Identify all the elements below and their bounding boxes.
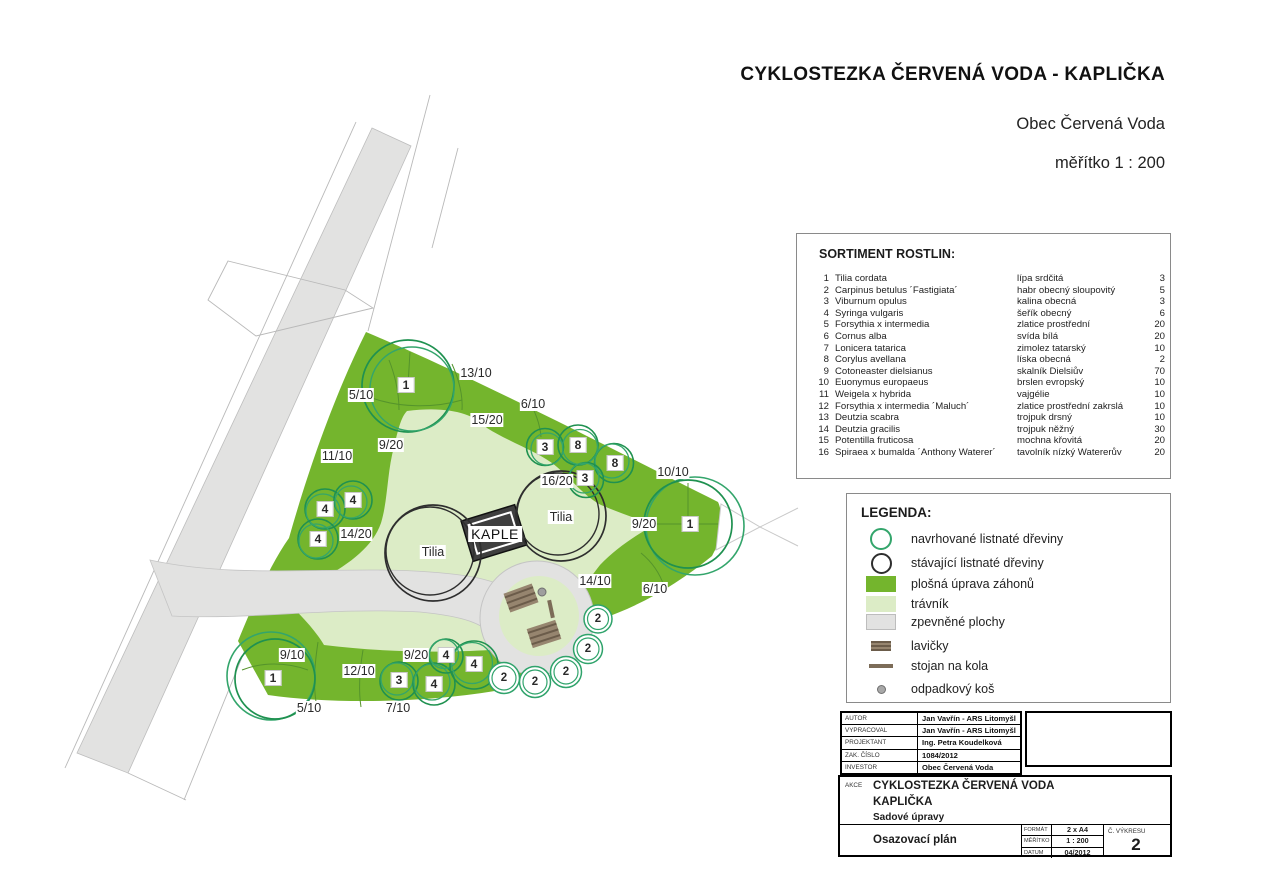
bed-quantity-label: 12/10	[342, 664, 375, 678]
plant-latin-name: Forsythia x intermedia	[835, 319, 1017, 331]
plant-ref-label: 4	[438, 647, 455, 663]
plant-count: 20	[1139, 447, 1165, 459]
legend-item-label: stávající listnaté dřeviny	[911, 556, 1044, 570]
authors-table-value: Jan Vavřín - ARS Litomyšl	[918, 713, 1020, 724]
bed-quantity-label: 16/20	[540, 474, 573, 488]
authors-table-value: Jan Vavřín - ARS Litomyšl	[918, 725, 1020, 736]
plant-number: 14	[807, 424, 835, 436]
plant-czech-name: skalník Dielsiův	[1017, 366, 1139, 378]
plant-latin-name: Potentilla fruticosa	[835, 435, 1017, 447]
paving-swatch-icon	[861, 611, 901, 633]
bed-quantity-label: 5/10	[296, 701, 322, 715]
plant-list-row: 10Euonymus europaeusbrslen evropský10	[797, 377, 1170, 389]
bed-quantity-label: 6/10	[642, 582, 668, 596]
akce-label: AKCE	[845, 782, 862, 789]
title-block-bottom: Osazovací plán FORMÁT2 x A4MĚŘÍTKO1 : 20…	[840, 824, 1170, 856]
bed-quantity-label: 11/10	[321, 449, 353, 463]
bed-swatch-icon	[861, 573, 901, 595]
plant-list-row: 8Corylus avellanalíska obecná2	[797, 354, 1170, 366]
authors-table-extension-box	[1025, 711, 1172, 767]
plant-latin-name: Deutzia gracilis	[835, 424, 1017, 436]
plant-czech-name: zimolez tatarský	[1017, 343, 1139, 355]
legend-item: navrhované listnaté dřeviny	[847, 528, 1170, 550]
bed-swatch-symbol	[866, 576, 896, 592]
authors-table-value: 1084/2012	[918, 750, 1020, 761]
drawing-name: Osazovací plán	[873, 834, 957, 846]
sheet-title: CYKLOSTEZKA ČERVENÁ VODA - KAPLIČKA	[740, 64, 1165, 86]
plant-count: 10	[1139, 343, 1165, 355]
plant-count: 6	[1139, 308, 1165, 320]
plant-latin-name: Lonicera tatarica	[835, 343, 1017, 355]
drawing-meta-label: FORMÁT	[1022, 825, 1052, 835]
plant-count: 3	[1139, 296, 1165, 308]
legend-item-label: trávník	[911, 597, 949, 611]
plant-count: 10	[1139, 401, 1165, 413]
plant-ref-label: 3	[577, 470, 594, 486]
plant-number: 3	[807, 296, 835, 308]
tree-ref-label: 2	[563, 666, 569, 678]
plant-ref-label: 3	[391, 672, 408, 688]
authors-table-row: VYPRACOVALJan Vavřín - ARS Litomyšl	[842, 725, 1020, 737]
drawing-meta-label: DATUM	[1022, 848, 1052, 858]
bed-quantity-label: 9/20	[403, 648, 429, 662]
plant-list-row: 3Viburnum opuluskalina obecná3	[797, 296, 1170, 308]
plant-czech-name: trojpuk drsný	[1017, 412, 1139, 424]
drawing-meta-value: 1 : 200	[1052, 836, 1103, 846]
bed-quantity-label: 9/20	[631, 517, 657, 531]
plant-ref-label: 4	[317, 501, 334, 517]
bed-quantity-label: 5/10	[348, 388, 374, 402]
bed-quantity-label: 14/10	[578, 574, 611, 588]
legend-item-label: lavičky	[911, 639, 949, 653]
plant-number: 2	[807, 285, 835, 297]
authors-table-row: AUTORJan Vavřín - ARS Litomyšl	[842, 713, 1020, 725]
drawing-meta-value: 2 x A4	[1052, 825, 1103, 835]
legend-item: stávající listnaté dřeviny	[847, 552, 1170, 574]
legend-title: LEGENDA:	[861, 505, 932, 520]
plant-number: 10	[807, 377, 835, 389]
plant-latin-name: Carpinus betulus ´Fastigiata´	[835, 285, 1017, 297]
sheet-scale-note: měřítko 1 : 200	[740, 154, 1165, 173]
authors-table-label: AUTOR	[842, 713, 918, 724]
existing-tree-name-label: Tilia	[420, 545, 446, 559]
plant-ref-label: 8	[570, 437, 587, 453]
legend-item-label: zpevněné plochy	[911, 615, 1005, 629]
plant-count: 10	[1139, 377, 1165, 389]
plant-latin-name: Corylus avellana	[835, 354, 1017, 366]
authors-table-label: ZAK. ČÍSLO	[842, 750, 918, 761]
plant-number: 5	[807, 319, 835, 331]
plant-number: 7	[807, 343, 835, 355]
plant-czech-name: brslen evropský	[1017, 377, 1139, 389]
plant-czech-name: kalina obecná	[1017, 296, 1139, 308]
plant-count: 3	[1139, 273, 1165, 285]
plant-czech-name: líska obecná	[1017, 354, 1139, 366]
proposed-tree-circle-symbol	[870, 528, 892, 550]
bike-stand-symbol	[869, 664, 893, 668]
plant-czech-name: lípa srdčitá	[1017, 273, 1139, 285]
plant-czech-name: šeřík obecný	[1017, 308, 1139, 320]
plant-list-row: 4Syringa vulgarisšeřík obecný6	[797, 308, 1170, 320]
plant-latin-name: Syringa vulgaris	[835, 308, 1017, 320]
plant-ref-label: 3	[537, 439, 554, 455]
plant-list-row: 15Potentilla fruticosamochna křovitá20	[797, 435, 1170, 447]
bed-quantity-label: 6/10	[520, 397, 546, 411]
legend-item-label: odpadkový koš	[911, 682, 994, 696]
drawing-meta-value: 04/2012	[1052, 848, 1103, 858]
plant-number: 12	[807, 401, 835, 413]
paving-swatch-symbol	[866, 614, 896, 630]
bed-quantity-label: 10/10	[656, 465, 689, 479]
plant-number: 1	[807, 273, 835, 285]
authors-table-row: ZAK. ČÍSLO1084/2012	[842, 750, 1020, 762]
plant-latin-name: Cotoneaster dielsianus	[835, 366, 1017, 378]
plant-latin-name: Cornus alba	[835, 331, 1017, 343]
bed-quantity-label: 13/10	[459, 366, 492, 380]
tree-ref-label: 2	[585, 643, 591, 655]
plant-list-row: 5Forsythia x intermediazlatice prostředn…	[797, 319, 1170, 331]
project-name-line1: CYKLOSTEZKA ČERVENÁ VODA	[873, 780, 1054, 792]
legend-item-label: plošná úprava záhonů	[911, 577, 1034, 591]
authors-table: AUTORJan Vavřín - ARS LitomyšlVYPRACOVAL…	[840, 711, 1022, 775]
lawn-swatch-symbol	[866, 596, 896, 612]
sheet-header: CYKLOSTEZKA ČERVENÁ VODA - KAPLIČKA Obec…	[740, 64, 1165, 173]
plant-number: 16	[807, 447, 835, 459]
bed-quantity-label: 9/20	[378, 438, 404, 452]
plant-count: 20	[1139, 435, 1165, 447]
plant-czech-name: zlatice prostřední	[1017, 319, 1139, 331]
plant-number: 6	[807, 331, 835, 343]
plant-list-box: SORTIMENT ROSTLIN: 1Tilia cordatalípa sr…	[796, 233, 1171, 479]
plant-count: 70	[1139, 366, 1165, 378]
plant-list-row: 11Weigela x hybridavajgélie10	[797, 389, 1170, 401]
trash-bin-icon	[861, 678, 901, 700]
plant-number: 8	[807, 354, 835, 366]
tree-ref-label: 2	[595, 613, 601, 625]
existing-tree-name-label: Tilia	[548, 510, 574, 524]
authors-table-value: Ing. Petra Koudelková	[918, 737, 1020, 748]
plant-list-rows: 1Tilia cordatalípa srdčitá32Carpinus bet…	[797, 273, 1170, 459]
plant-count: 20	[1139, 331, 1165, 343]
legend-item: plošná úprava záhonů	[847, 573, 1170, 595]
plant-czech-name: trojpuk něžný	[1017, 424, 1139, 436]
plant-latin-name: Weigela x hybrida	[835, 389, 1017, 401]
plant-ref-label: 8	[607, 455, 624, 471]
plant-ref-label: 4	[426, 676, 443, 692]
plant-number: 11	[807, 389, 835, 401]
title-block: AKCE CYKLOSTEZKA ČERVENÁ VODA KAPLIČKA S…	[838, 775, 1172, 857]
plant-list-row: 9Cotoneaster dielsianusskalník Dielsiův7…	[797, 366, 1170, 378]
plant-number: 15	[807, 435, 835, 447]
authors-table-label: VYPRACOVAL	[842, 725, 918, 736]
tree-ref-label: 2	[532, 676, 538, 688]
bike-stand-icon	[861, 655, 901, 677]
legend-item-label: stojan na kola	[911, 659, 988, 673]
plant-ref-label: 1	[398, 377, 415, 393]
bench-symbol	[871, 641, 891, 651]
proposed-tree-circle-icon	[861, 528, 901, 550]
authors-table-label: PROJEKTANT	[842, 737, 918, 748]
drawing-sheet: 13/105/106/1015/209/2011/1016/2010/109/2…	[0, 0, 1280, 878]
bench-icon	[861, 635, 901, 657]
legend-box: LEGENDA: navrhované listnaté dřevinystáv…	[846, 493, 1171, 703]
plant-list-row: 1Tilia cordatalípa srdčitá3	[797, 273, 1170, 285]
plant-list-title: SORTIMENT ROSTLIN:	[819, 247, 955, 261]
plant-number: 9	[807, 366, 835, 378]
legend-item: lavičky	[847, 635, 1170, 657]
bed-quantity-label: 9/10	[279, 648, 305, 662]
trash-bin-symbol	[877, 685, 886, 694]
plant-count: 10	[1139, 389, 1165, 401]
drawing-number: 2	[1102, 835, 1170, 855]
plant-latin-name: Deutzia scabra	[835, 412, 1017, 424]
plant-latin-name: Forsythia x intermedia ´Maluch´	[835, 401, 1017, 413]
plant-czech-name: habr obecný sloupovitý	[1017, 285, 1139, 297]
trash-bin	[538, 588, 546, 596]
plant-list-row: 12Forsythia x intermedia ´Maluch´zlatice…	[797, 401, 1170, 413]
bed-quantity-label: 14/20	[339, 527, 372, 541]
plant-latin-name: Spiraea x bumalda ´Anthony Waterer´	[835, 447, 1017, 459]
plant-count: 5	[1139, 285, 1165, 297]
plant-ref-label: 1	[682, 516, 699, 532]
plant-list-row: 13Deutzia scabratrojpuk drsný10	[797, 412, 1170, 424]
plant-list-row: 2Carpinus betulus ´Fastigiata´habr obecn…	[797, 285, 1170, 297]
sheet-subtitle: Obec Červená Voda	[740, 115, 1165, 134]
plant-czech-name: vajgélie	[1017, 389, 1139, 401]
plant-czech-name: mochna křovitá	[1017, 435, 1139, 447]
plant-ref-label: 1	[265, 670, 282, 686]
plant-count: 20	[1139, 319, 1165, 331]
project-name-line2: KAPLIČKA	[873, 796, 932, 808]
plant-latin-name: Tilia cordata	[835, 273, 1017, 285]
authors-table-row: INVESTORObec Červená Voda	[842, 762, 1020, 773]
drawing-meta-label: MĚŘÍTKO	[1022, 836, 1052, 846]
plant-count: 30	[1139, 424, 1165, 436]
authors-table-row: PROJEKTANTIng. Petra Koudelková	[842, 737, 1020, 749]
plant-count: 2	[1139, 354, 1165, 366]
existing-tree-circle-symbol	[871, 553, 892, 574]
drawing-meta-fields: FORMÁT2 x A4MĚŘÍTKO1 : 200DATUM04/2012	[1021, 825, 1104, 856]
authors-table-label: INVESTOR	[842, 762, 918, 773]
project-name-line3: Sadové úpravy	[873, 812, 944, 823]
plant-czech-name: svída bílá	[1017, 331, 1139, 343]
plant-list-row: 7Lonicera tataricazimolez tatarský10	[797, 343, 1170, 355]
plant-list-row: 14Deutzia gracilistrojpuk něžný30	[797, 424, 1170, 436]
authors-table-value: Obec Červená Voda	[918, 762, 1020, 773]
plant-ref-label: 4	[310, 531, 327, 547]
plant-list-row: 16Spiraea x bumalda ´Anthony Waterer´tav…	[797, 447, 1170, 459]
bed-quantity-label: 15/20	[470, 413, 503, 427]
plant-ref-label: 4	[345, 492, 362, 508]
plant-number: 13	[807, 412, 835, 424]
drawing-number-label: Č. VÝKRESU	[1108, 828, 1145, 835]
legend-item-label: navrhované listnaté dřeviny	[911, 532, 1063, 546]
bed-quantity-label: 7/10	[385, 701, 411, 715]
plant-latin-name: Euonymus europaeus	[835, 377, 1017, 389]
plant-number: 4	[807, 308, 835, 320]
legend-item: odpadkový koš	[847, 678, 1170, 700]
drawing-meta-row: FORMÁT2 x A4	[1022, 825, 1103, 836]
drawing-number-cell: Č. VÝKRESU 2	[1102, 825, 1170, 856]
plant-czech-name: tavolník nízký Watererův	[1017, 447, 1139, 459]
plant-latin-name: Viburnum opulus	[835, 296, 1017, 308]
plant-count: 10	[1139, 412, 1165, 424]
tree-ref-label: 2	[501, 672, 507, 684]
plant-czech-name: zlatice prostřední zakrslá	[1017, 401, 1139, 413]
legend-item: zpevněné plochy	[847, 611, 1170, 633]
legend-item: stojan na kola	[847, 655, 1170, 677]
drawing-meta-row: MĚŘÍTKO1 : 200	[1022, 836, 1103, 847]
plant-list-row: 6Cornus albasvída bílá20	[797, 331, 1170, 343]
drawing-meta-row: DATUM04/2012	[1022, 848, 1103, 858]
chapel-label: KAPLE	[468, 526, 522, 542]
plant-ref-label: 4	[466, 656, 483, 672]
existing-tree-circle-icon	[861, 552, 901, 574]
